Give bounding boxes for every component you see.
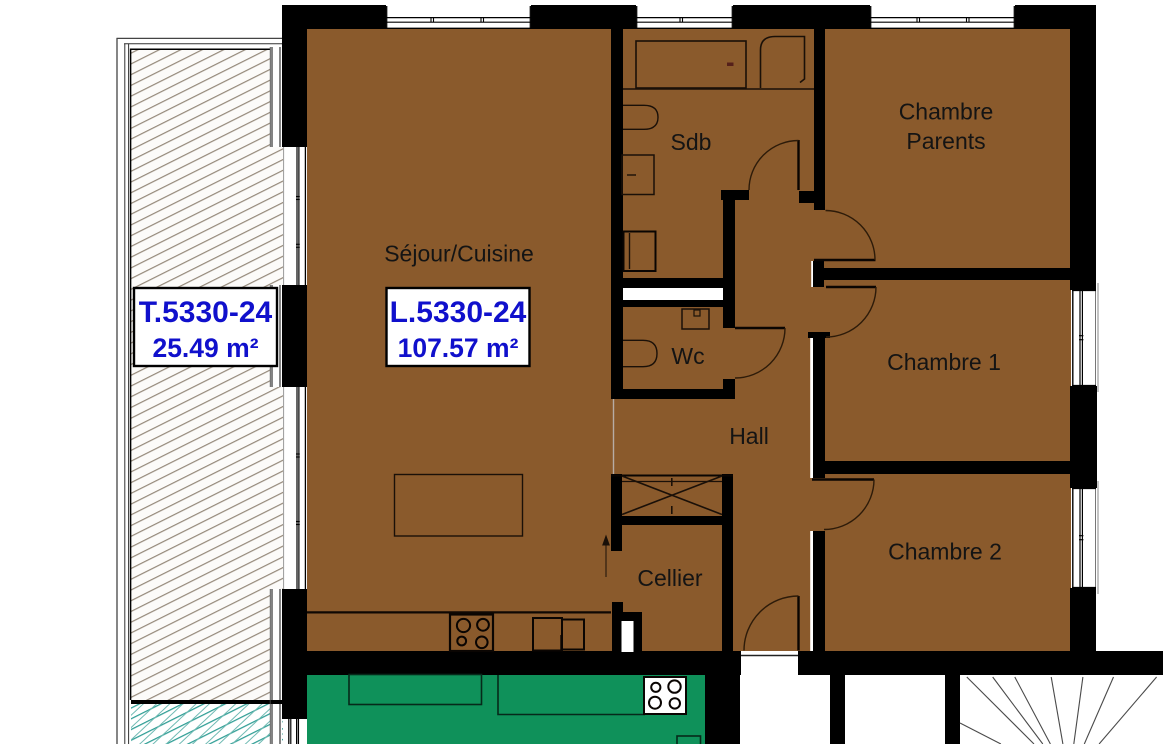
svg-text:Sdb: Sdb — [671, 129, 712, 155]
svg-text:Chambre 2: Chambre 2 — [888, 539, 1002, 565]
svg-text:L.5330-24: L.5330-24 — [390, 296, 527, 329]
svg-text:Hall: Hall — [729, 423, 769, 449]
svg-text:25.49 m²: 25.49 m² — [152, 333, 258, 363]
svg-text:Wc: Wc — [671, 343, 704, 369]
svg-text:Séjour/Cuisine: Séjour/Cuisine — [384, 241, 534, 267]
svg-text:Cellier: Cellier — [637, 565, 703, 591]
svg-text:Chambre: Chambre — [899, 99, 994, 125]
svg-text:T.5330-24: T.5330-24 — [139, 296, 273, 329]
svg-text:Parents: Parents — [906, 128, 985, 154]
svg-text:Chambre 1: Chambre 1 — [887, 349, 1001, 375]
svg-text:107.57 m²: 107.57 m² — [398, 333, 519, 363]
